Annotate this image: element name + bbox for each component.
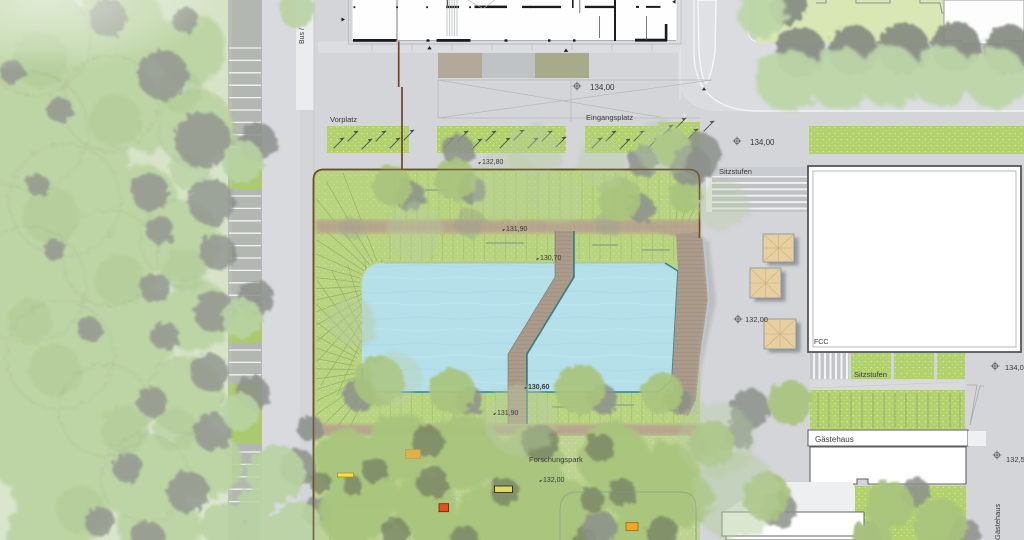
svg-text:Sitzstufen: Sitzstufen	[854, 370, 887, 379]
svg-text:132,00: 132,00	[543, 477, 565, 484]
svg-text:132,80: 132,80	[482, 159, 504, 166]
svg-text:Gästehaus: Gästehaus	[993, 503, 1002, 540]
svg-text:Bus /: Bus /	[299, 28, 306, 44]
svg-text:132,00: 132,00	[745, 315, 768, 324]
svg-text:130,60: 130,60	[528, 384, 550, 391]
svg-text:Gästehaus: Gästehaus	[815, 435, 854, 444]
svg-text:134,00: 134,00	[590, 83, 615, 92]
svg-text:131,90: 131,90	[497, 410, 519, 417]
svg-text:FCC: FCC	[814, 339, 828, 346]
svg-text:132,5: 132,5	[1006, 455, 1024, 464]
svg-text:134,00: 134,00	[1005, 363, 1024, 372]
svg-text:134,00: 134,00	[750, 138, 775, 147]
svg-text:131,90: 131,90	[506, 226, 528, 233]
svg-text:Eingangsplatz: Eingangsplatz	[586, 113, 633, 122]
svg-text:Vorplatz: Vorplatz	[330, 115, 357, 124]
svg-text:Sitzstufen: Sitzstufen	[719, 167, 752, 176]
svg-text:Forschungspark: Forschungspark	[529, 455, 583, 464]
svg-text:130,70: 130,70	[540, 255, 562, 262]
